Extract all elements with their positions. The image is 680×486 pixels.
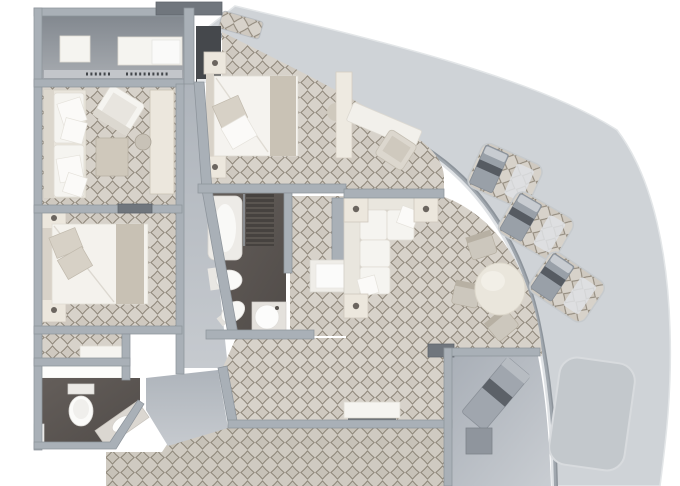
bathroom-2 — [34, 334, 149, 447]
wall — [228, 420, 452, 428]
vanity-counter — [150, 90, 174, 194]
wall — [34, 8, 42, 450]
wall — [284, 193, 292, 273]
sofa — [44, 90, 88, 198]
exterior-carpet — [106, 428, 444, 486]
toilet — [68, 384, 94, 426]
wall — [444, 348, 452, 486]
stool — [135, 134, 151, 150]
wall — [444, 348, 540, 356]
wall — [34, 205, 182, 213]
door — [118, 204, 152, 213]
wall — [34, 79, 184, 87]
spa-pad — [547, 355, 637, 473]
wall — [344, 189, 444, 198]
round-sink — [252, 302, 286, 332]
double-bed — [42, 224, 148, 304]
wall — [34, 358, 130, 366]
bench-sideboard — [344, 402, 400, 421]
floorplan-svg — [0, 0, 680, 486]
king-bed — [206, 74, 298, 156]
dressing-hall — [290, 196, 346, 336]
wall — [122, 334, 130, 380]
wall — [34, 326, 182, 334]
wall — [184, 8, 194, 84]
lit-counter — [42, 366, 126, 378]
wall — [206, 330, 314, 339]
storage-box — [60, 36, 90, 62]
wardrobe-room — [42, 15, 186, 80]
ottoman-table — [96, 138, 128, 176]
sitting-room — [42, 84, 176, 206]
side-table — [466, 428, 492, 454]
wall — [198, 184, 346, 193]
floorplan-image — [0, 0, 680, 486]
shower — [244, 194, 274, 246]
